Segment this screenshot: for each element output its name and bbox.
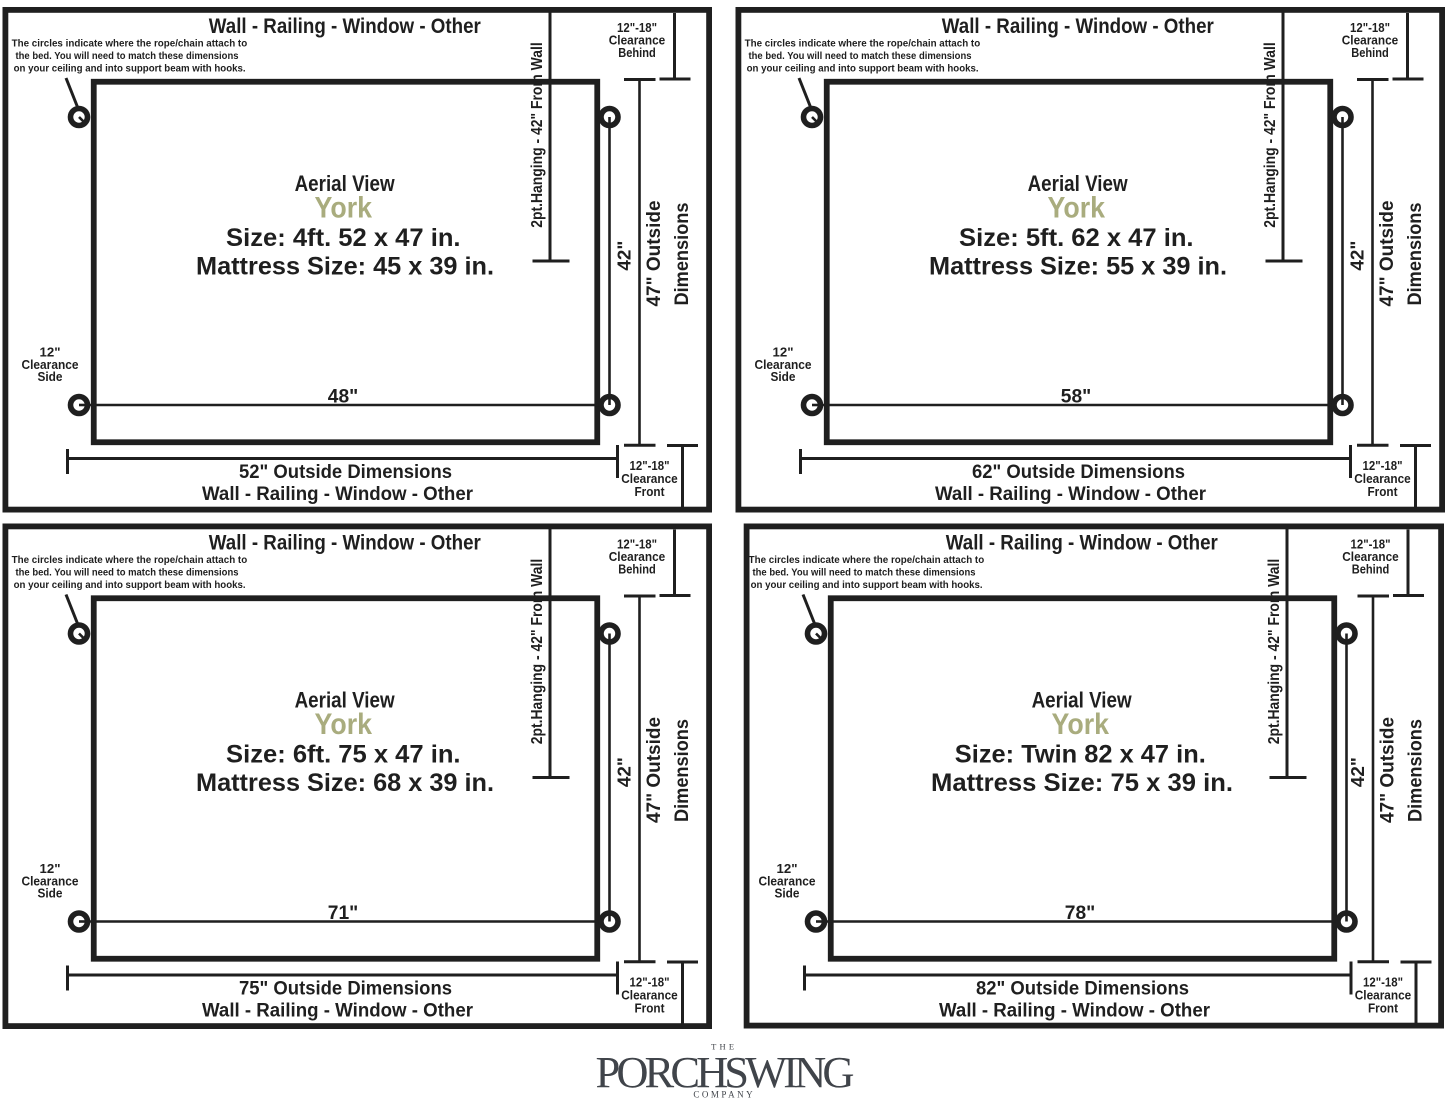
svg-text:The circles indicate where the: The circles indicate where the rope/chai…	[749, 555, 985, 566]
svg-text:2pt.Hanging - 42" From Wall: 2pt.Hanging - 42" From Wall	[529, 559, 546, 745]
svg-text:Side: Side	[771, 369, 796, 384]
svg-text:on your ceiling and into suppo: on your ceiling and into support beam wi…	[751, 580, 983, 591]
svg-text:62" Outside Dimensions: 62" Outside Dimensions	[972, 462, 1185, 483]
svg-text:Wall - Railing - Window - Othe: Wall - Railing - Window - Other	[942, 14, 1215, 38]
svg-text:Side: Side	[38, 886, 63, 901]
svg-text:The circles indicate where the: The circles indicate where the rope/chai…	[12, 38, 248, 49]
svg-text:Size: Twin 82 x 47 in.: Size: Twin 82 x 47 in.	[955, 741, 1206, 769]
svg-text:Front: Front	[635, 484, 666, 499]
svg-text:Wall - Railing - Window - Othe: Wall - Railing - Window - Other	[202, 1000, 473, 1022]
svg-text:42": 42"	[614, 241, 634, 271]
svg-text:47" Outside: 47" Outside	[643, 200, 665, 306]
svg-text:The circles indicate where the: The circles indicate where the rope/chai…	[12, 555, 248, 566]
svg-text:Size: 5ft. 62 x 47 in.: Size: 5ft. 62 x 47 in.	[959, 224, 1194, 252]
svg-text:on your ceiling and into suppo: on your ceiling and into support beam wi…	[747, 64, 979, 75]
svg-text:78": 78"	[1065, 902, 1096, 924]
svg-text:48": 48"	[328, 386, 359, 408]
svg-text:Behind: Behind	[618, 45, 656, 60]
svg-text:Behind: Behind	[1352, 561, 1390, 576]
svg-text:on your ceiling and into suppo: on your ceiling and into support beam wi…	[14, 64, 246, 75]
svg-text:47" Outside: 47" Outside	[1376, 200, 1398, 306]
svg-text:the bed. You will need to matc: the bed. You will need to match these di…	[753, 567, 976, 578]
svg-text:2pt.Hanging - 42" From Wall: 2pt.Hanging - 42" From Wall	[529, 42, 546, 228]
svg-text:Behind: Behind	[1351, 45, 1389, 60]
svg-text:Behind: Behind	[618, 561, 656, 576]
svg-text:Front: Front	[635, 1000, 666, 1015]
svg-text:47" Outside: 47" Outside	[1376, 717, 1398, 823]
svg-text:Wall - Railing - Window - Othe: Wall - Railing - Window - Other	[209, 531, 482, 555]
svg-text:71": 71"	[328, 902, 359, 924]
svg-text:the bed. You will need to matc: the bed. You will need to match these di…	[16, 567, 239, 578]
svg-text:the bed. You will need to matc: the bed. You will need to match these di…	[749, 51, 972, 62]
svg-text:the bed. You will need to matc: the bed. You will need to match these di…	[16, 51, 239, 62]
svg-text:Wall - Railing - Window - Othe: Wall - Railing - Window - Other	[946, 531, 1219, 555]
svg-text:Dimensions: Dimensions	[1404, 719, 1426, 822]
svg-text:Mattress Size: 55 x 39 in.: Mattress Size: 55 x 39 in.	[929, 253, 1227, 281]
svg-text:Wall - Railing - Window - Othe: Wall - Railing - Window - Other	[935, 483, 1206, 505]
svg-text:York: York	[1048, 191, 1106, 224]
svg-text:2pt.Hanging - 42" From Wall: 2pt.Hanging - 42" From Wall	[1266, 559, 1283, 745]
svg-text:52" Outside Dimensions: 52" Outside Dimensions	[239, 462, 452, 483]
svg-text:Side: Side	[38, 369, 63, 384]
svg-text:42": 42"	[1348, 757, 1368, 787]
svg-text:75" Outside Dimensions: 75" Outside Dimensions	[239, 979, 452, 1000]
svg-text:Mattress Size: 68 x 39 in.: Mattress Size: 68 x 39 in.	[196, 769, 494, 797]
svg-text:Mattress Size: 75 x 39 in.: Mattress Size: 75 x 39 in.	[931, 769, 1233, 797]
svg-text:42": 42"	[1347, 241, 1367, 271]
svg-text:on your ceiling and into suppo: on your ceiling and into support beam wi…	[14, 580, 246, 591]
svg-text:2pt.Hanging - 42" From Wall: 2pt.Hanging - 42" From Wall	[1262, 42, 1279, 228]
svg-text:Wall - Railing - Window - Othe: Wall - Railing - Window - Other	[209, 14, 482, 38]
svg-text:Dimensions: Dimensions	[671, 719, 693, 822]
svg-text:Dimensions: Dimensions	[671, 202, 693, 305]
svg-text:Mattress Size: 45 x 39 in.: Mattress Size: 45 x 39 in.	[196, 253, 494, 281]
svg-text:Front: Front	[1368, 484, 1399, 499]
svg-text:Wall - Railing - Window - Othe: Wall - Railing - Window - Other	[939, 1000, 1210, 1022]
svg-text:Dimensions: Dimensions	[1404, 202, 1426, 305]
svg-text:York: York	[1052, 708, 1110, 741]
svg-text:Size: 4ft. 52 x 47 in.: Size: 4ft. 52 x 47 in.	[226, 224, 461, 252]
svg-text:York: York	[315, 191, 373, 224]
svg-text:York: York	[315, 708, 373, 741]
svg-text:58": 58"	[1061, 386, 1092, 408]
svg-text:42": 42"	[614, 757, 634, 787]
svg-text:82" Outside Dimensions: 82" Outside Dimensions	[976, 979, 1189, 1000]
svg-text:Front: Front	[1368, 1000, 1399, 1015]
svg-text:Side: Side	[775, 886, 800, 901]
svg-text:The circles indicate where the: The circles indicate where the rope/chai…	[745, 38, 981, 49]
svg-text:Wall - Railing - Window - Othe: Wall - Railing - Window - Other	[202, 483, 473, 505]
svg-text:47" Outside: 47" Outside	[643, 717, 665, 823]
svg-text:Size: 6ft. 75 x 47 in.: Size: 6ft. 75 x 47 in.	[226, 741, 461, 769]
